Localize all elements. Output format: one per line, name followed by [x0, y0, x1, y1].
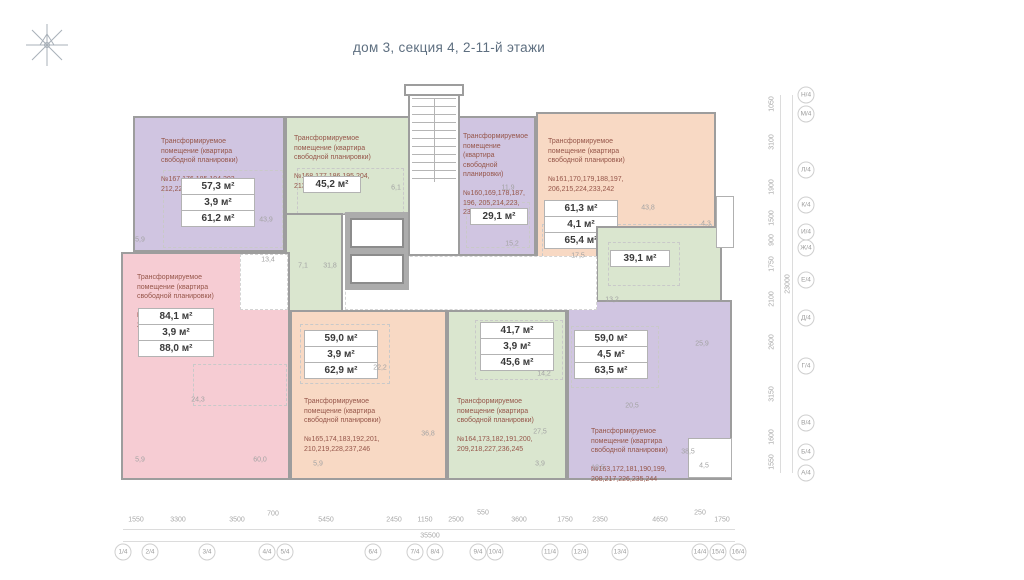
dimension-label: 43,9 — [259, 217, 273, 224]
area-value: 59,0 м² — [575, 331, 647, 346]
grid-axis-bubble: Ж/4 — [798, 240, 815, 257]
dimension-label: 38,5 — [681, 449, 695, 456]
dimension-label: 36,8 — [421, 431, 435, 438]
area-box: 41,7 м² 3,9 м² 45,6 м² — [480, 322, 554, 371]
right-ruler-total-line — [792, 95, 793, 473]
area-box: 39,1 м² — [610, 250, 670, 267]
grid-axis-bubble: К/4 — [798, 197, 815, 214]
dimension-value: 3500 — [229, 517, 245, 524]
area-value: 45,6 м² — [481, 354, 553, 370]
dimension-label: 13,4 — [261, 257, 275, 264]
dimension-label: 5,9 — [313, 461, 323, 468]
area-value: 59,0 м² — [305, 331, 377, 346]
bottom-ruler-total: 35500 — [420, 533, 439, 540]
apartment-165[interactable]: 59,0 м² 3,9 м² 62,9 м² Трансформируемое … — [290, 310, 447, 480]
grid-axis-bubble: 15/4 — [710, 544, 727, 561]
area-value: 57,3 м² — [182, 179, 254, 194]
apartment-type-label: Трансформируемое помещение (квартира сво… — [294, 134, 406, 162]
apartment-type-label: Трансформируемое помещение (квартира сво… — [457, 397, 569, 425]
grid-axis-bubble: Л/4 — [798, 162, 815, 179]
dimension-label: 4,3 — [701, 221, 711, 228]
area-value: 88,0 м² — [139, 340, 213, 356]
dimension-label: 22,2 — [373, 365, 387, 372]
dimension-label: 11,9 — [501, 185, 514, 192]
grid-axis-bubble: Е/4 — [798, 272, 815, 289]
dimension-value: 1150 — [417, 517, 432, 524]
grid-axis-bubble: Д/4 — [798, 310, 815, 327]
grid-axis-bubble: 12/4 — [572, 544, 589, 561]
page-title: дом 3, секция 4, 2-11-й этажи — [353, 40, 545, 55]
grid-axis-bubble: 2/4 — [142, 544, 159, 561]
area-box: 45,2 м² — [303, 176, 361, 193]
grid-axis-bubble: 11/4 — [542, 544, 559, 561]
grid-axis-bubble: 3/4 — [199, 544, 216, 561]
dimension-value: 2450 — [386, 517, 402, 524]
dimension-label: 13,2 — [605, 297, 619, 304]
grid-axis-bubble: 16/4 — [730, 544, 747, 561]
apartment-168[interactable]: Трансформируемое помещение (квартира сво… — [285, 116, 412, 215]
grid-axis-bubble: Б/4 — [798, 444, 815, 461]
balcony — [688, 438, 732, 478]
dimension-value: 1500 — [769, 210, 776, 226]
area-box: 84,1 м² 3,9 м² 88,0 м² — [138, 308, 214, 357]
dimension-label: 24,3 — [191, 397, 205, 404]
dimension-value: 1550 — [128, 517, 144, 524]
grid-axis-bubble: М/4 — [798, 106, 815, 123]
grid-axis-bubble: А/4 — [798, 465, 815, 482]
area-value: 84,1 м² — [139, 309, 213, 324]
bottom-ruler-line — [123, 529, 735, 530]
dimension-label: 3,9 — [535, 461, 545, 468]
apartment-numbers: №161,170,179,188,197, 206,215,224,233,24… — [548, 175, 683, 194]
dimension-value: 3600 — [511, 517, 527, 524]
dimension-value: 2350 — [592, 517, 608, 524]
grid-axis-bubble: 13/4 — [612, 544, 629, 561]
dimension-value: 2100 — [769, 291, 776, 307]
dimension-value: 250 — [694, 510, 706, 517]
floor-plan-canvas: дом 3, секция 4, 2-11-й этажи Трансформи… — [0, 0, 1024, 580]
dimension-value: 2500 — [448, 517, 464, 524]
right-ruler-total: 23000 — [785, 274, 792, 293]
dimension-value: 1600 — [769, 429, 776, 445]
dimension-value: 1050 — [769, 96, 776, 112]
grid-axis-bubble: 1/4 — [115, 544, 132, 561]
dimension-label: 4,5 — [699, 463, 709, 470]
apartment-167[interactable]: Трансформируемое помещение (квартира сво… — [133, 116, 285, 252]
apartment-type-label: Трансформируемое помещение (квартира сво… — [304, 397, 422, 425]
grid-axis-bubble: 5/4 — [277, 544, 294, 561]
dimension-label: 27,5 — [533, 429, 547, 436]
dimension-value: 700 — [267, 511, 279, 518]
area-value: 45,2 м² — [304, 177, 360, 192]
dimension-label: 18,5 — [591, 465, 605, 472]
grid-axis-bubble: 6/4 — [365, 544, 382, 561]
area-box: 29,1 м² — [470, 208, 528, 225]
grid-axis-bubble: 14/4 — [692, 544, 709, 561]
area-value: 62,9 м² — [305, 362, 377, 378]
area-value: 3,9 м² — [139, 324, 213, 340]
grid-axis-bubble: Н/4 — [798, 87, 815, 104]
area-value: 4,5 м² — [575, 346, 647, 362]
dimension-value: 3300 — [170, 517, 186, 524]
stair-divider — [434, 98, 435, 182]
dimension-label: 20,5 — [625, 403, 639, 410]
compass-icon — [24, 22, 70, 68]
dimension-value: 1900 — [769, 179, 776, 195]
dimension-value: 3150 — [769, 386, 776, 402]
grid-axis-bubble: 9/4 — [470, 544, 487, 561]
dimension-label: 6,1 — [391, 185, 401, 192]
area-value: 3,9 м² — [182, 194, 254, 210]
dimension-label: 25,9 — [695, 341, 709, 348]
dimension-label: 7,1 — [298, 263, 308, 270]
dimension-label: 5,9 — [135, 237, 145, 244]
area-value: 61,2 м² — [182, 210, 254, 226]
grid-axis-bubble: Г/4 — [798, 358, 815, 375]
dimension-label: 60,0 — [253, 457, 267, 464]
apartment-type-label: Трансформируемое помещение (квартира сво… — [548, 137, 683, 165]
grid-axis-bubble: 7/4 — [407, 544, 424, 561]
area-value: 3,9 м² — [481, 338, 553, 354]
elevator-cab-icon — [350, 254, 404, 284]
area-value: 29,1 м² — [471, 209, 527, 224]
area-value: 3,9 м² — [305, 346, 377, 362]
apartment-160[interactable]: Трансформируемое помещение (квартира сво… — [456, 116, 536, 256]
grid-axis-bubble: 10/4 — [487, 544, 504, 561]
elevator-block — [345, 212, 409, 290]
apartment-numbers: №165,174,183,192,201, 210,219,228,237,24… — [304, 435, 422, 454]
dimension-value: 1550 — [769, 454, 776, 470]
area-value: 39,1 м² — [611, 251, 669, 266]
dimension-value: 1750 — [714, 517, 730, 524]
area-value: 41,7 м² — [481, 323, 553, 338]
elevator-cab-icon — [350, 218, 404, 248]
dimension-label: 15,2 — [505, 241, 519, 248]
apartment-type-label: Трансформируемое помещение (квартира сво… — [463, 132, 533, 179]
dimension-value: 2600 — [769, 334, 776, 350]
dimension-value: 3100 — [769, 134, 776, 150]
apartment-numbers: №164,173,182,191,200, 209,218,227,236,24… — [457, 435, 569, 454]
dimension-label: 17,5 — [571, 253, 585, 260]
dimension-value: 550 — [477, 510, 489, 517]
area-box: 57,3 м² 3,9 м² 61,2 м² — [181, 178, 255, 227]
dimension-label: 5,9 — [135, 457, 145, 464]
area-box: 59,0 м² 4,5 м² 63,5 м² — [574, 330, 648, 379]
grid-axis-bubble: 8/4 — [427, 544, 444, 561]
grid-axis-bubble: И/4 — [798, 224, 815, 241]
area-value: 61,3 м² — [545, 201, 617, 216]
apartment-type-label: Трансформируемое помещение (квартира сво… — [161, 137, 275, 165]
apartment-type-label: Трансформируемое помещение (квартира сво… — [137, 273, 255, 301]
dimension-value: 4650 — [652, 517, 668, 524]
staircase — [408, 94, 460, 256]
dimension-value: 900 — [769, 234, 776, 246]
bottom-ruler-total-line — [123, 541, 735, 542]
right-ruler-line — [780, 95, 781, 473]
area-box: 59,0 м² 3,9 м² 62,9 м² — [304, 330, 378, 379]
dimension-value: 1750 — [557, 517, 573, 524]
grid-axis-bubble: В/4 — [798, 415, 815, 432]
area-value: 63,5 м² — [575, 362, 647, 378]
dimension-value: 5450 — [318, 517, 334, 524]
apartment-164[interactable]: 41,7 м² 3,9 м² 45,6 м² Трансформируемое … — [447, 310, 567, 480]
grid-axis-bubble: 4/4 — [259, 544, 276, 561]
balcony — [716, 196, 734, 248]
free-plan-zone — [193, 364, 287, 406]
dimension-label: 43,8 — [641, 205, 655, 212]
dimension-label: 14,2 — [537, 371, 551, 378]
dimension-label: 31,8 — [323, 263, 337, 270]
dimension-value: 1750 — [769, 256, 776, 272]
